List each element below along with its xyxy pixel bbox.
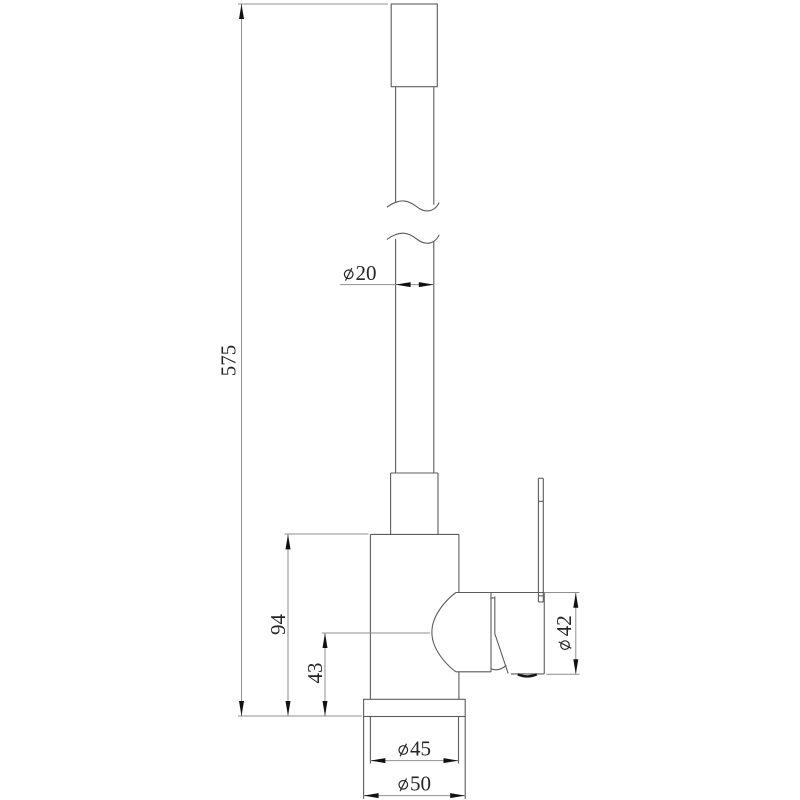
svg-text:42: 42 bbox=[552, 615, 576, 636]
svg-text:575: 575 bbox=[217, 345, 241, 377]
svg-text:20: 20 bbox=[356, 261, 377, 285]
svg-text:45: 45 bbox=[410, 737, 431, 761]
svg-text:43: 43 bbox=[303, 663, 327, 684]
svg-text:94: 94 bbox=[266, 614, 290, 636]
svg-text:50: 50 bbox=[410, 772, 431, 796]
